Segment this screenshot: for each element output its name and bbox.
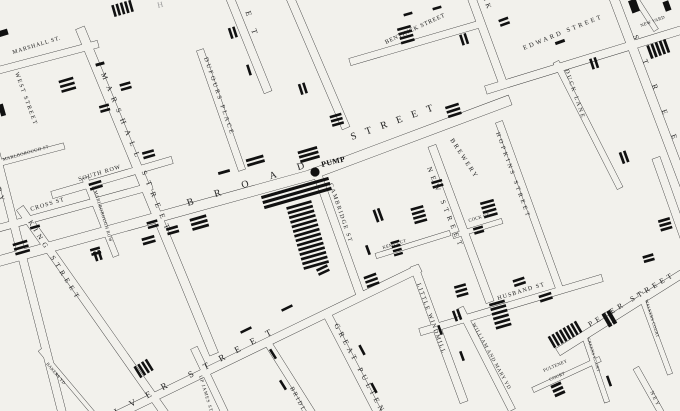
death-bar [0, 32, 8, 35]
tally-group [0, 104, 3, 116]
tally-group [0, 32, 8, 35]
snow-cholera-map-page: MARSHALL ST.WEST STREETMARSHALL STREETH … [0, 0, 680, 411]
death-bar [632, 0, 636, 12]
tally-group [665, 1, 668, 10]
broad-street-pump-map: MARSHALL ST.WEST STREETMARSHALL STREETH … [0, 0, 680, 411]
pump-dot-icon [310, 167, 319, 176]
death-bar [0, 104, 3, 116]
tally-group [632, 0, 636, 12]
death-bar [665, 1, 668, 10]
